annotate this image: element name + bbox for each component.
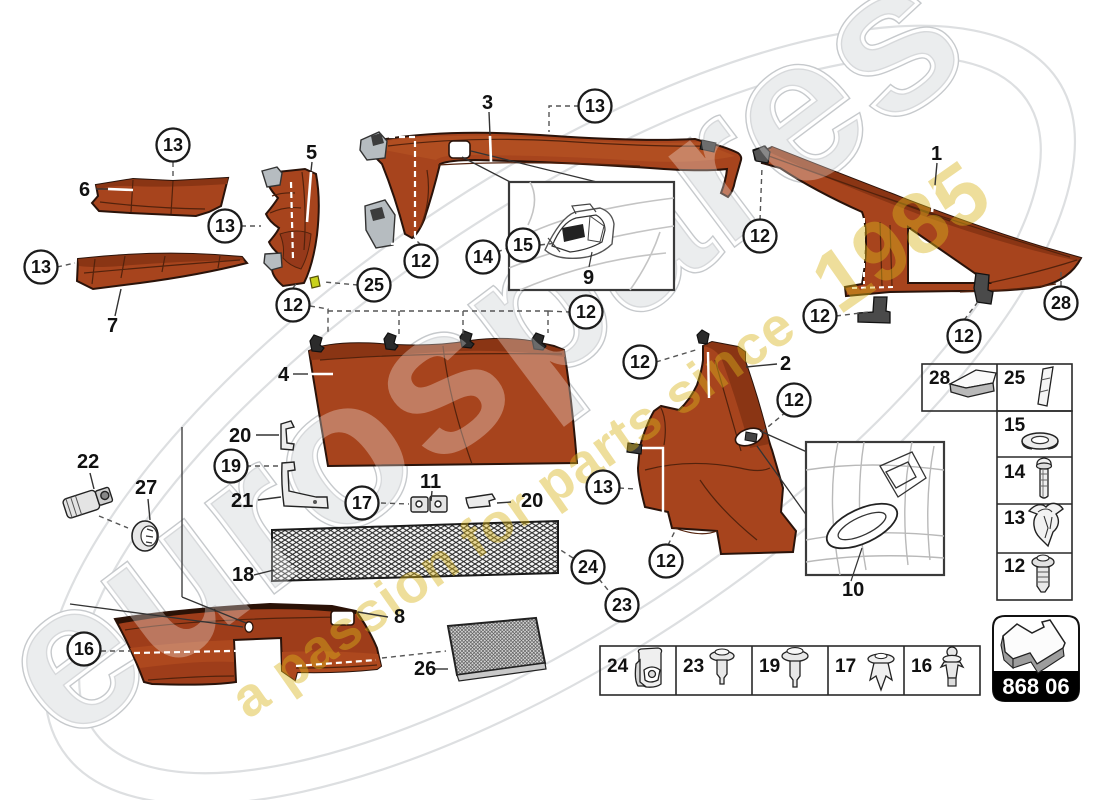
svg-text:12: 12	[283, 295, 303, 315]
svg-text:23: 23	[612, 595, 632, 615]
svg-text:14: 14	[473, 247, 493, 267]
svg-text:19: 19	[221, 456, 241, 476]
svg-text:26: 26	[414, 658, 436, 680]
svg-text:7: 7	[107, 315, 118, 337]
svg-text:10: 10	[842, 579, 864, 601]
svg-text:6: 6	[79, 179, 90, 201]
svg-text:23: 23	[683, 656, 704, 677]
svg-text:3: 3	[482, 92, 493, 114]
svg-text:27: 27	[135, 477, 157, 499]
svg-text:12: 12	[954, 326, 974, 346]
svg-text:13: 13	[31, 257, 51, 277]
svg-text:25: 25	[1004, 368, 1026, 389]
svg-text:5: 5	[306, 142, 317, 164]
svg-text:11: 11	[420, 471, 441, 493]
svg-text:15: 15	[513, 235, 533, 255]
svg-text:25: 25	[364, 275, 384, 295]
svg-text:12: 12	[656, 551, 676, 571]
svg-text:20: 20	[521, 490, 543, 512]
svg-text:4: 4	[278, 364, 290, 386]
svg-text:1: 1	[931, 143, 942, 165]
svg-text:20: 20	[229, 425, 251, 447]
svg-text:18: 18	[232, 564, 254, 586]
svg-text:12: 12	[630, 352, 650, 372]
svg-text:16: 16	[911, 656, 932, 677]
svg-text:14: 14	[1004, 462, 1026, 483]
svg-text:16: 16	[74, 639, 94, 659]
svg-text:12: 12	[576, 302, 596, 322]
svg-text:13: 13	[593, 477, 613, 497]
svg-text:12: 12	[750, 226, 770, 246]
svg-text:28: 28	[1051, 293, 1071, 313]
svg-text:2: 2	[780, 353, 791, 375]
svg-text:8: 8	[394, 606, 405, 628]
svg-text:22: 22	[77, 451, 99, 473]
svg-text:19: 19	[759, 656, 780, 677]
svg-text:24: 24	[607, 656, 629, 677]
svg-text:13: 13	[215, 216, 235, 236]
svg-text:28: 28	[929, 368, 950, 389]
svg-text:868 06: 868 06	[1002, 674, 1069, 699]
svg-text:13: 13	[585, 96, 605, 116]
svg-text:24: 24	[578, 557, 598, 577]
svg-text:9: 9	[583, 267, 594, 289]
svg-text:17: 17	[352, 493, 372, 513]
svg-text:17: 17	[835, 656, 856, 677]
svg-text:15: 15	[1004, 415, 1026, 436]
svg-text:12: 12	[411, 251, 431, 271]
svg-text:12: 12	[784, 390, 804, 410]
svg-text:12: 12	[1004, 556, 1025, 577]
svg-text:13: 13	[1004, 508, 1025, 529]
svg-text:21: 21	[231, 490, 253, 512]
svg-text:13: 13	[163, 135, 183, 155]
svg-text:12: 12	[810, 306, 830, 326]
